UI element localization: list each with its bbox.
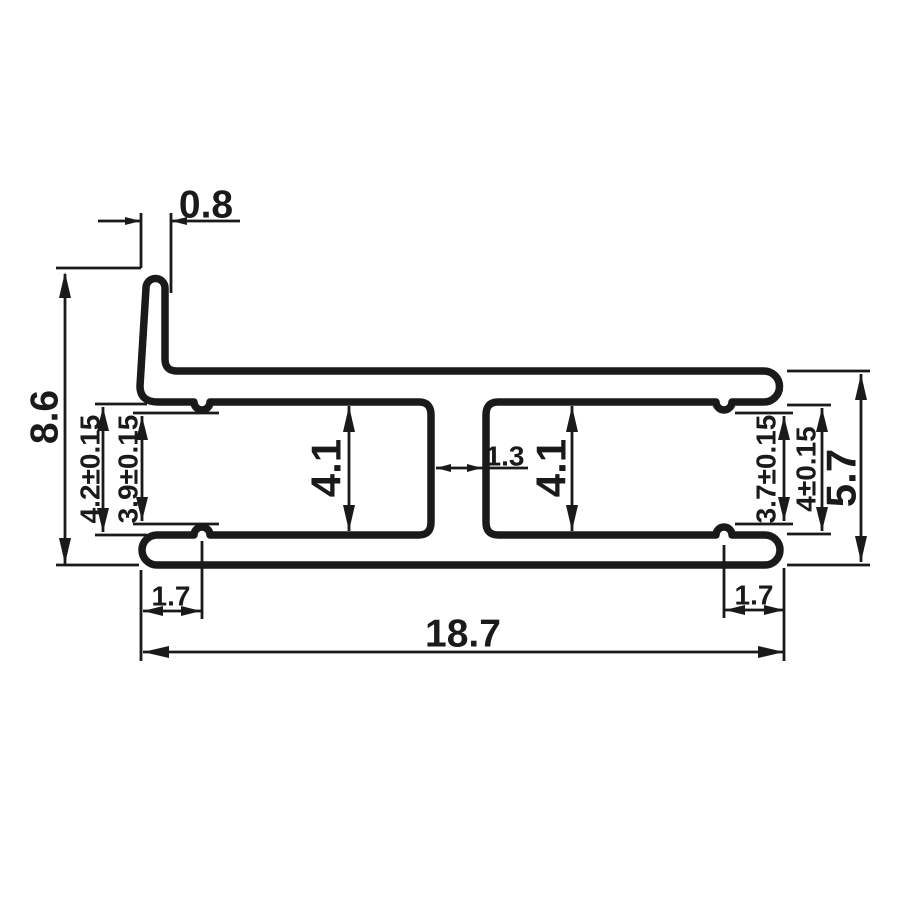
dimension-labels: 0.8 8.6 4.2±0.15 3.9±0.15 4.1 1.3 4.1 3.… xyxy=(24,184,865,656)
arrow-right-channel-up xyxy=(566,406,578,432)
dim-label-left-opening: 4.2±0.15 xyxy=(75,415,106,524)
dim-label-left-lip: 1.7 xyxy=(152,581,191,612)
arrow-web-right xyxy=(467,464,482,472)
arrow-profile-height-down xyxy=(855,536,867,562)
dim-label-left-channel: 4.1 xyxy=(303,439,350,497)
dim-label-overall-width: 18.7 xyxy=(425,613,501,656)
arrow-web-left xyxy=(436,464,451,472)
arrow-left-channel-down xyxy=(343,505,355,531)
technical-drawing-canvas: 0.8 8.6 4.2±0.15 3.9±0.15 4.1 1.3 4.1 3.… xyxy=(0,0,900,900)
profile-outline xyxy=(140,279,780,566)
dim-label-web-thickness: 1.3 xyxy=(486,441,525,472)
dim-label-right-inner: 3.7±0.15 xyxy=(751,415,782,524)
arrow-left-channel-up xyxy=(343,406,355,432)
arrow-right-channel-down xyxy=(566,505,578,531)
arrow-width-left xyxy=(143,646,169,658)
dim-label-profile-height: 5.7 xyxy=(818,449,865,507)
dim-label-left-inner: 3.9±0.15 xyxy=(113,415,144,524)
arrow-height-down xyxy=(59,538,71,564)
profile-cross-section xyxy=(140,279,780,566)
dim-label-overall-height: 8.6 xyxy=(24,390,67,444)
dim-label-flange-thickness: 0.8 xyxy=(179,184,233,227)
arrow-width-right xyxy=(758,646,784,658)
arrow-height-up xyxy=(59,272,71,298)
dim-label-right-channel: 4.1 xyxy=(528,439,575,497)
arrow-flange-left xyxy=(125,217,141,225)
drawing-page: 0.8 8.6 4.2±0.15 3.9±0.15 4.1 1.3 4.1 3.… xyxy=(0,0,900,900)
arrow-profile-height-up xyxy=(855,374,867,400)
dim-label-right-lip: 1.7 xyxy=(735,580,774,611)
